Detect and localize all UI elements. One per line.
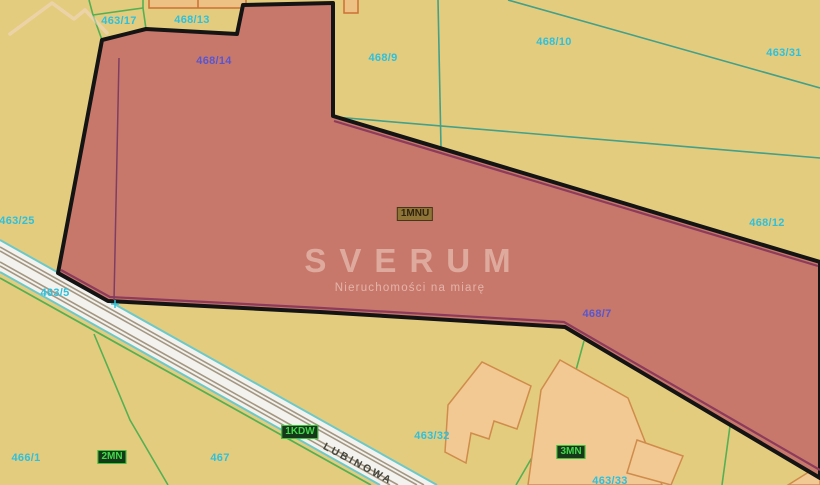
parcel-label-468-10: 468/10 [536, 36, 571, 48]
zone-badge-2MN: 2MN [97, 450, 126, 464]
parcel-label-463-17: 463/17 [101, 15, 136, 27]
parcel-label-463-5: 463/5 [40, 287, 69, 299]
parcel-label-468-9: 468/9 [368, 52, 397, 64]
zone-badge-3MN: 3MN [556, 445, 585, 459]
zone-badge-1MNU: 1MNU [397, 207, 433, 221]
watermark-title: SVERUM [304, 242, 523, 280]
parcel-label-468-12: 468/12 [749, 217, 784, 229]
parcel-label-467: 467 [210, 452, 229, 464]
parcel-label-468-7: 468/7 [582, 308, 611, 320]
parcel-label-463-25: 463/25 [0, 215, 35, 227]
parcel-label-466-1: 466/1 [11, 452, 40, 464]
watermark-subtitle: Nieruchomości na miarę [335, 282, 485, 294]
parcel-label-463-31: 463/31 [766, 47, 801, 59]
zone-badge-1KDW: 1KDW [281, 425, 318, 439]
parcel-label-468-13: 468/13 [174, 14, 209, 26]
parcel-label-463-33: 463/33 [592, 475, 627, 485]
cadastral-map-canvas[interactable]: SVERUM Nieruchomości na miarę LUBINOWA 4… [0, 0, 820, 485]
parcel-label-468-14: 468/14 [196, 55, 231, 67]
parcel-label-463-32: 463/32 [414, 430, 449, 442]
